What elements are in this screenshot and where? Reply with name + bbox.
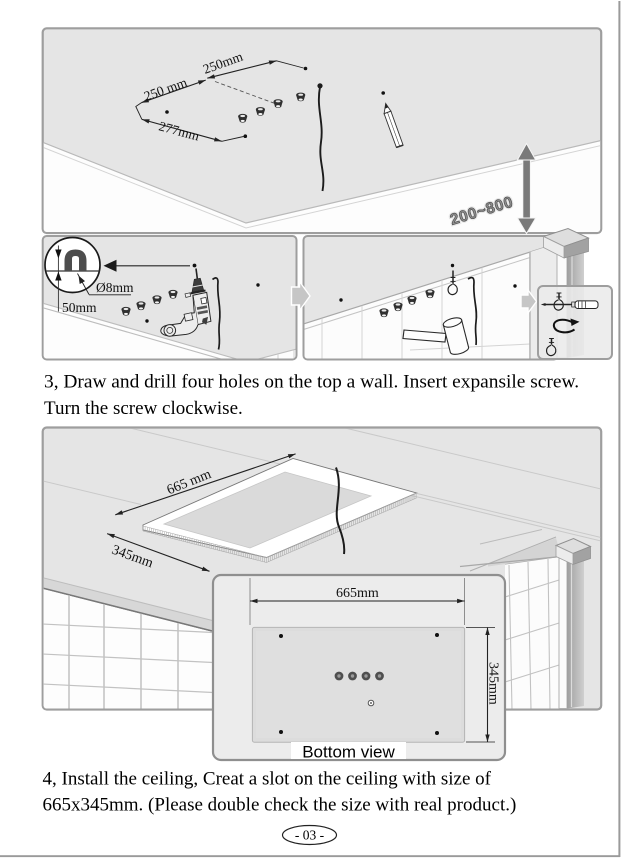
svg-text:3, Draw and drill four holes o: 3, Draw and drill four holes on the top …: [44, 372, 579, 393]
svg-text:665mm: 665mm: [336, 586, 379, 601]
svg-text:- 03 -: - 03 -: [295, 828, 325, 843]
svg-text:Bottom view: Bottom view: [302, 743, 395, 762]
svg-text:665x345mm. (Please double chec: 665x345mm. (Please double check the size…: [43, 795, 517, 816]
svg-text:345mm: 345mm: [486, 662, 501, 705]
svg-text:Ø8mm: Ø8mm: [96, 280, 134, 295]
svg-text:50mm: 50mm: [62, 300, 97, 315]
svg-text:Turn the screw clockwise.: Turn the screw clockwise.: [44, 398, 243, 419]
svg-text:4, Install the ceiling, Creat: 4, Install the ceiling, Creat a slot on …: [43, 769, 492, 790]
